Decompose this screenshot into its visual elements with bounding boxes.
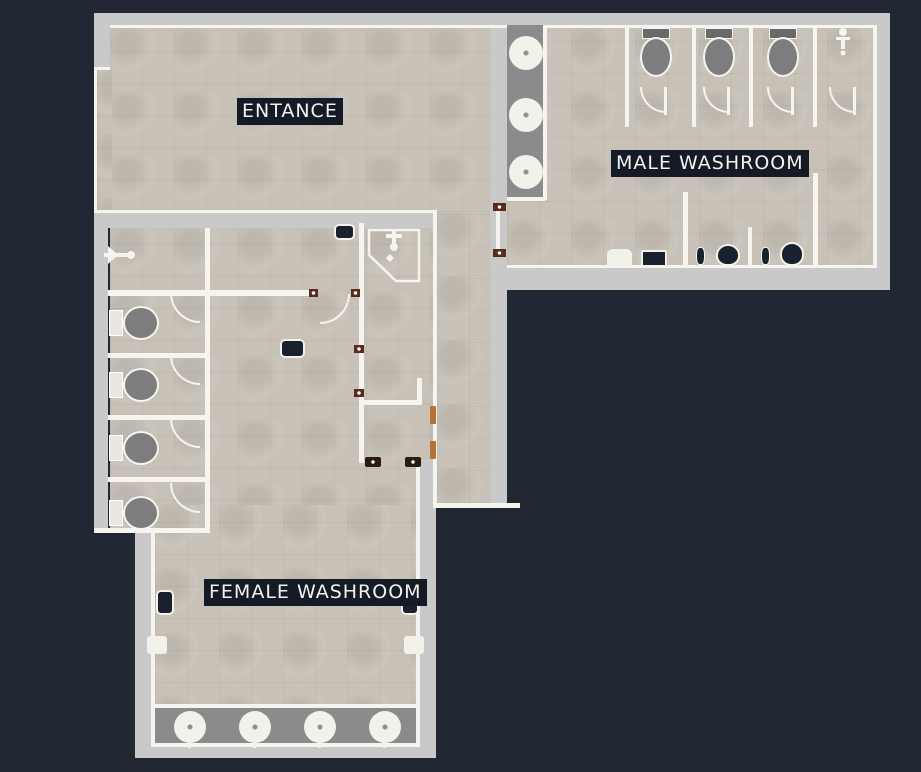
male-sink-3 xyxy=(509,155,543,189)
male-waste-bin xyxy=(607,249,632,267)
female-sink-3-drain xyxy=(318,739,321,748)
male-sink-2 xyxy=(509,98,543,132)
male-urinal-2 xyxy=(780,242,804,266)
shower-room-west-wall xyxy=(359,223,364,463)
male-flush-valve-2 xyxy=(761,247,770,265)
female-sink-4-drain xyxy=(383,739,386,748)
entrance-stub-cap xyxy=(94,67,110,70)
male-bottom-wall xyxy=(491,268,890,290)
corridor-floor xyxy=(437,212,490,503)
divider-wall-entrance-male xyxy=(490,13,507,503)
corridor-door-frame-top xyxy=(430,406,436,424)
male-urinal-partition-3 xyxy=(813,173,818,265)
corridor-door-frame-bottom xyxy=(430,441,436,459)
female-sink-2 xyxy=(239,711,271,743)
female-bottom-inner-line xyxy=(155,743,416,747)
female-toilet-1-bowl xyxy=(123,306,159,340)
male-toilet-2-bowl xyxy=(703,37,735,77)
female-toilet-2-tank xyxy=(109,372,123,398)
female-stall-divider-3 xyxy=(108,477,208,482)
entrance-bottom-wall xyxy=(94,213,437,228)
shower-wall-marker-2 xyxy=(354,389,364,397)
male-urinal-partition-1 xyxy=(683,192,688,265)
female-room-divider-wall xyxy=(205,228,210,290)
male-entry-door-jamb-bottom xyxy=(493,249,506,257)
entrance-left-edge-line xyxy=(94,70,97,212)
floor-plan-canvas: ENTANCE MALE WASHROOM FEMALE WASHROOM xyxy=(0,0,921,772)
top-wall-inner-line xyxy=(110,25,873,28)
male-toilet-1-bowl xyxy=(640,37,672,77)
male-stall-partition-3 xyxy=(749,28,753,127)
entrance-floor-left xyxy=(97,70,112,212)
male-stall-3-door xyxy=(791,87,794,115)
male-stall-partition-2 xyxy=(692,28,696,127)
male-stall-partition-1 xyxy=(625,28,629,127)
female-washroom-label: FEMALE WASHROOM xyxy=(204,579,427,606)
female-hwall-door-jamb-right xyxy=(351,289,360,297)
female-toilet-3-tank xyxy=(109,435,123,461)
entrance-bottom-line xyxy=(94,210,437,213)
female-top-cabinet xyxy=(334,224,355,240)
male-urinal-partition-2 xyxy=(748,227,752,265)
female-toilet-2-bowl xyxy=(123,368,159,402)
vestibule-door-jamb-left xyxy=(365,457,381,467)
female-sink-2-drain xyxy=(253,739,256,748)
entrance-label: ENTANCE xyxy=(237,98,343,125)
female-bottom-wall xyxy=(135,747,436,758)
male-entry-door-jamb-top xyxy=(493,203,506,211)
corridor-west-line xyxy=(433,212,437,503)
corridor-bottom-line xyxy=(433,503,520,508)
female-hand-dryer-right xyxy=(404,636,424,654)
female-toilet-4-bowl xyxy=(123,496,159,530)
female-sink-3 xyxy=(304,711,336,743)
female-toilet-4-tank xyxy=(109,500,123,526)
female-horizontal-wall xyxy=(108,290,312,296)
shower-wall-marker-1 xyxy=(354,345,364,353)
male-counter-right-edge xyxy=(543,25,547,200)
vestibule-east-stub xyxy=(417,378,422,405)
female-west-wall xyxy=(94,212,108,533)
female-waste-bin-left xyxy=(156,590,174,615)
female-sink-1 xyxy=(174,711,206,743)
male-stall-partition-4 xyxy=(813,28,817,127)
male-bottom-inner-line xyxy=(507,265,873,268)
male-stall-4-door xyxy=(853,87,856,115)
female-hand-dryer-left xyxy=(147,636,167,654)
male-flush-valve-1 xyxy=(696,247,705,265)
female-bench xyxy=(280,339,305,358)
male-washroom-label: MALE WASHROOM xyxy=(611,150,809,177)
male-urinal-1 xyxy=(716,244,740,266)
female-sink-1-drain xyxy=(188,739,191,748)
vestibule-door-jamb-right xyxy=(405,457,421,467)
female-sink-4 xyxy=(369,711,401,743)
male-washroom-floor xyxy=(507,28,873,266)
male-sink-1 xyxy=(509,36,543,70)
female-hwall-door-jamb-left xyxy=(309,289,318,297)
female-toilet-1-tank xyxy=(109,310,123,336)
male-counter-bottom-edge xyxy=(507,197,545,201)
male-stall-2-door xyxy=(727,87,730,115)
male-supply-box xyxy=(641,250,667,267)
entrance-left-wall-stub xyxy=(94,13,110,67)
male-right-wall xyxy=(877,13,890,290)
female-toilet-3-bowl xyxy=(123,431,159,465)
vestibule-north-wall xyxy=(362,400,420,405)
male-toilet-3-bowl xyxy=(767,37,799,77)
male-stall-1-door xyxy=(664,87,667,115)
male-entry-door-panel xyxy=(496,211,500,249)
male-right-inner-line xyxy=(873,25,877,268)
